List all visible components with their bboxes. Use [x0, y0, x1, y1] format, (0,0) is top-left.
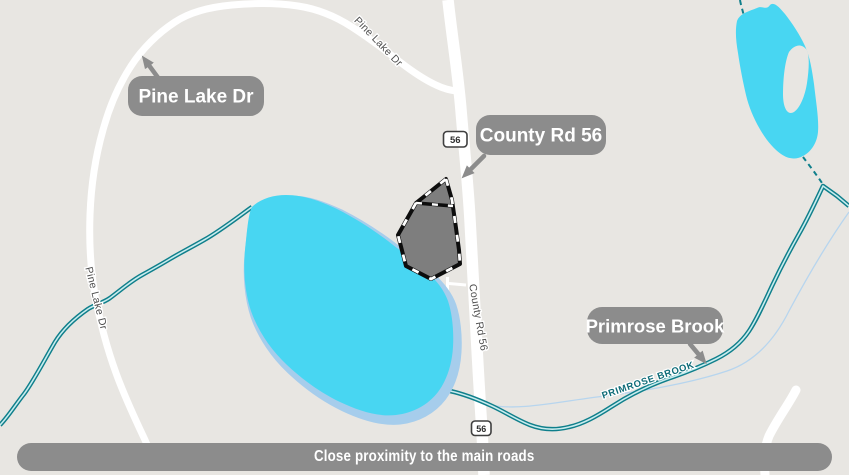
label-bubble-county-rd-56: County Rd 56 — [476, 115, 606, 155]
route-shield-number: 56 — [450, 135, 461, 146]
route-shield-56-south: 56 — [472, 421, 492, 436]
route-shield-56-north: 56 — [444, 132, 468, 148]
label-bubble-primrose-brook: Primrose Brook — [586, 307, 726, 344]
bubble-label: County Rd 56 — [480, 126, 602, 147]
label-bubble-pine-lake-dr: Pine Lake Dr — [128, 76, 264, 116]
map-graphic: 56 56 Pine Lake Dr Pine Lake Dr County R… — [0, 0, 849, 475]
bubble-label: Pine Lake Dr — [138, 87, 254, 108]
bubble-label: Primrose Brook — [586, 316, 726, 337]
route-shield-number: 56 — [476, 424, 486, 434]
driveway-stub — [449, 284, 466, 286]
map-canvas: 56 56 Pine Lake Dr Pine Lake Dr County R… — [0, 0, 849, 475]
caption-banner: Close proximity to the main roads — [17, 443, 832, 471]
caption-text: Close proximity to the main roads — [314, 448, 534, 466]
